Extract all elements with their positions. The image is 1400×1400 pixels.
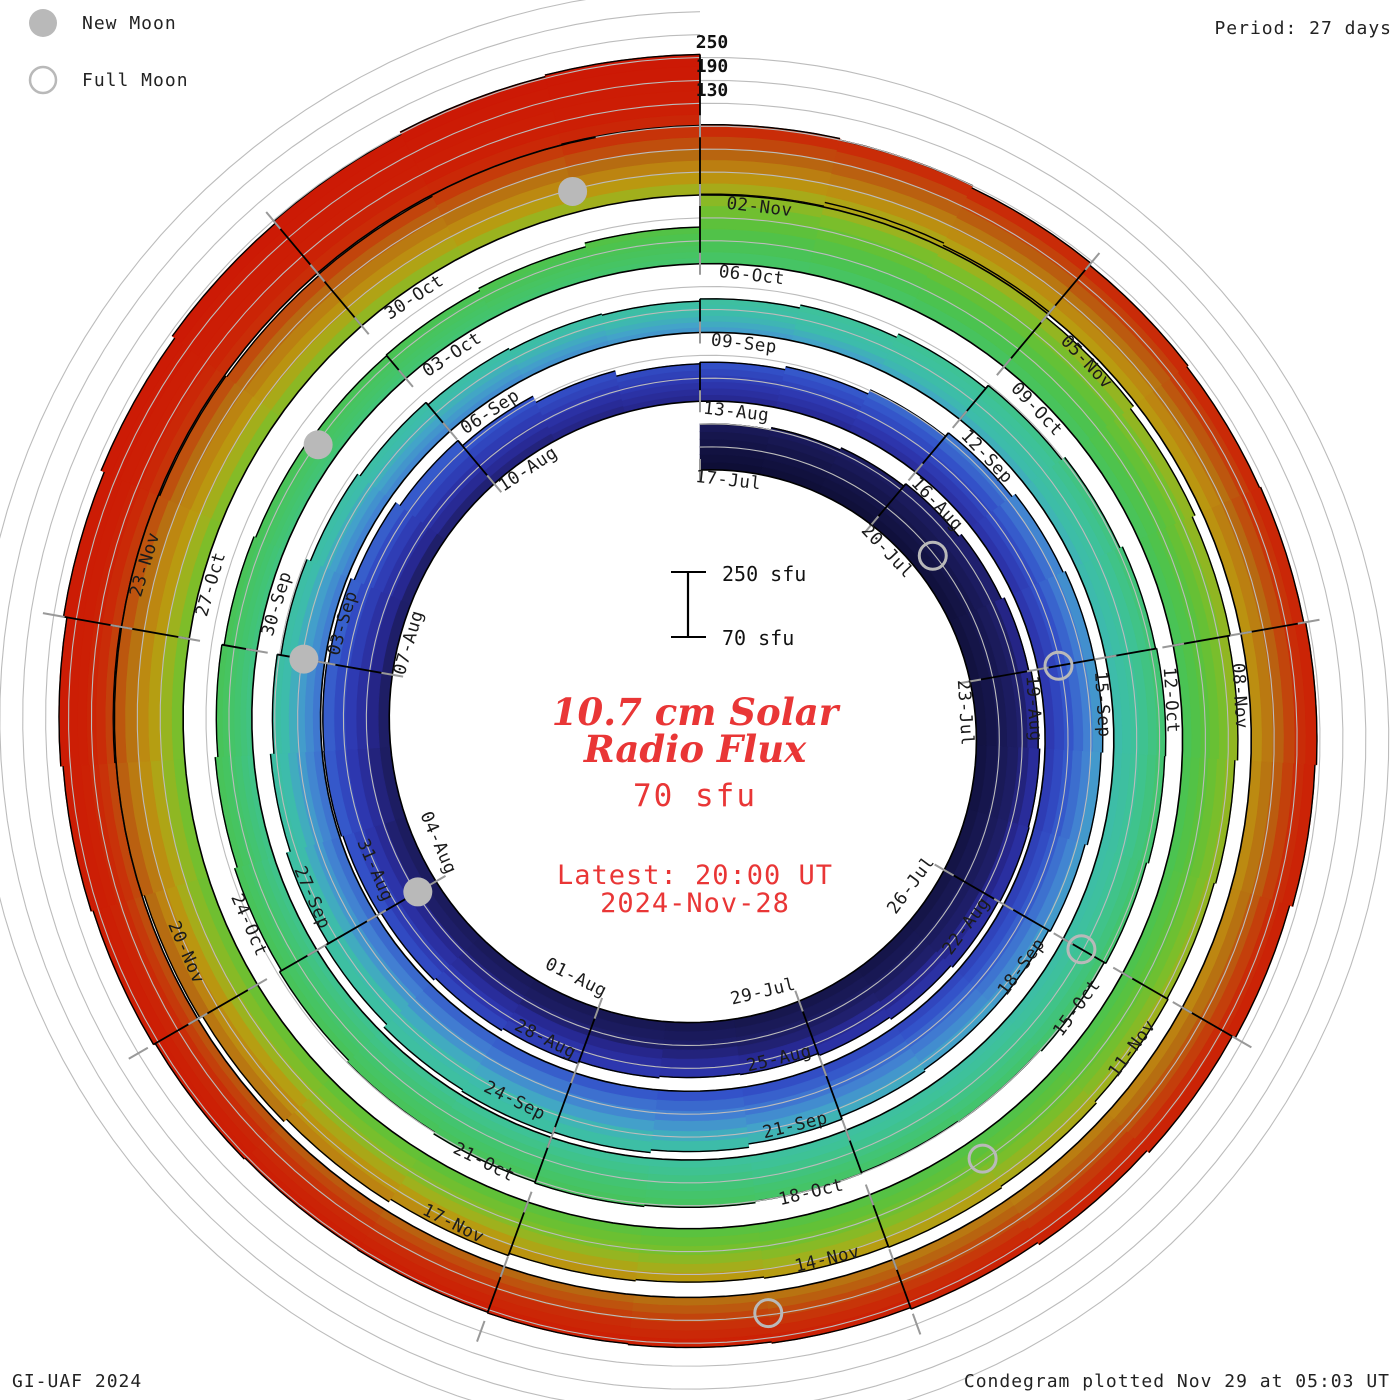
credit-label: GI-UAF 2024 bbox=[12, 1371, 142, 1392]
date-label-12-Oct: 12-Oct bbox=[1159, 666, 1183, 733]
latest-time: Latest: 20:00 UT bbox=[460, 862, 930, 890]
full-moon-icon bbox=[28, 65, 58, 95]
date-label-15-Sep: 15-Sep bbox=[1090, 671, 1114, 738]
center-annotation: 10.7 cm Solar Radio Flux 70 sfu Latest: … bbox=[460, 694, 930, 919]
chart-title-line2: Radio Flux bbox=[460, 731, 930, 768]
new-moon-marker bbox=[289, 645, 318, 674]
legend-new-moon-label: New Moon bbox=[82, 13, 177, 34]
date-label-23-Jul: 23-Jul bbox=[953, 679, 977, 746]
condegram-page: 17-Jul20-Jul23-Jul26-Jul29-Jul01-Aug04-A… bbox=[0, 0, 1400, 1400]
new-moon-marker bbox=[403, 877, 432, 906]
chart-title: 10.7 cm Solar Radio Flux bbox=[460, 694, 930, 768]
current-flux-value: 70 sfu bbox=[460, 778, 930, 814]
new-moon-icon bbox=[28, 8, 58, 38]
latest-timestamp: Latest: 20:00 UT 2024-Nov-28 bbox=[460, 862, 930, 919]
legend-full-moon-label: Full Moon bbox=[82, 70, 189, 91]
moon-legend: New Moon Full Moon bbox=[28, 6, 189, 120]
legend-new-moon: New Moon bbox=[28, 6, 189, 40]
scale-bar-min-label: 70 sfu bbox=[722, 626, 794, 650]
chart-title-line1: 10.7 cm Solar bbox=[460, 694, 930, 731]
radial-axis-value: 190 bbox=[696, 56, 729, 77]
date-label-08-Nov: 08-Nov bbox=[1227, 662, 1251, 729]
new-moon-marker bbox=[558, 177, 587, 206]
scale-bar-max-label: 250 sfu bbox=[722, 562, 806, 586]
flux-scale-bar: 250 sfu70 sfu bbox=[671, 562, 806, 650]
plotted-timestamp: Condegram plotted Nov 29 at 05:03 UT bbox=[964, 1371, 1390, 1392]
date-label-19-Aug: 19-Aug bbox=[1021, 675, 1045, 742]
new-moon-marker bbox=[304, 430, 333, 459]
legend-full-moon: Full Moon bbox=[28, 63, 189, 97]
radial-axis-value: 250 bbox=[696, 32, 729, 53]
radial-axis-labels: 250190130 bbox=[696, 32, 729, 101]
radial-axis-value: 130 bbox=[696, 80, 729, 101]
date-label-29-Jul: 29-Jul bbox=[729, 975, 798, 1010]
period-label: Period: 27 days bbox=[1214, 18, 1392, 39]
latest-date: 2024-Nov-28 bbox=[460, 890, 930, 918]
